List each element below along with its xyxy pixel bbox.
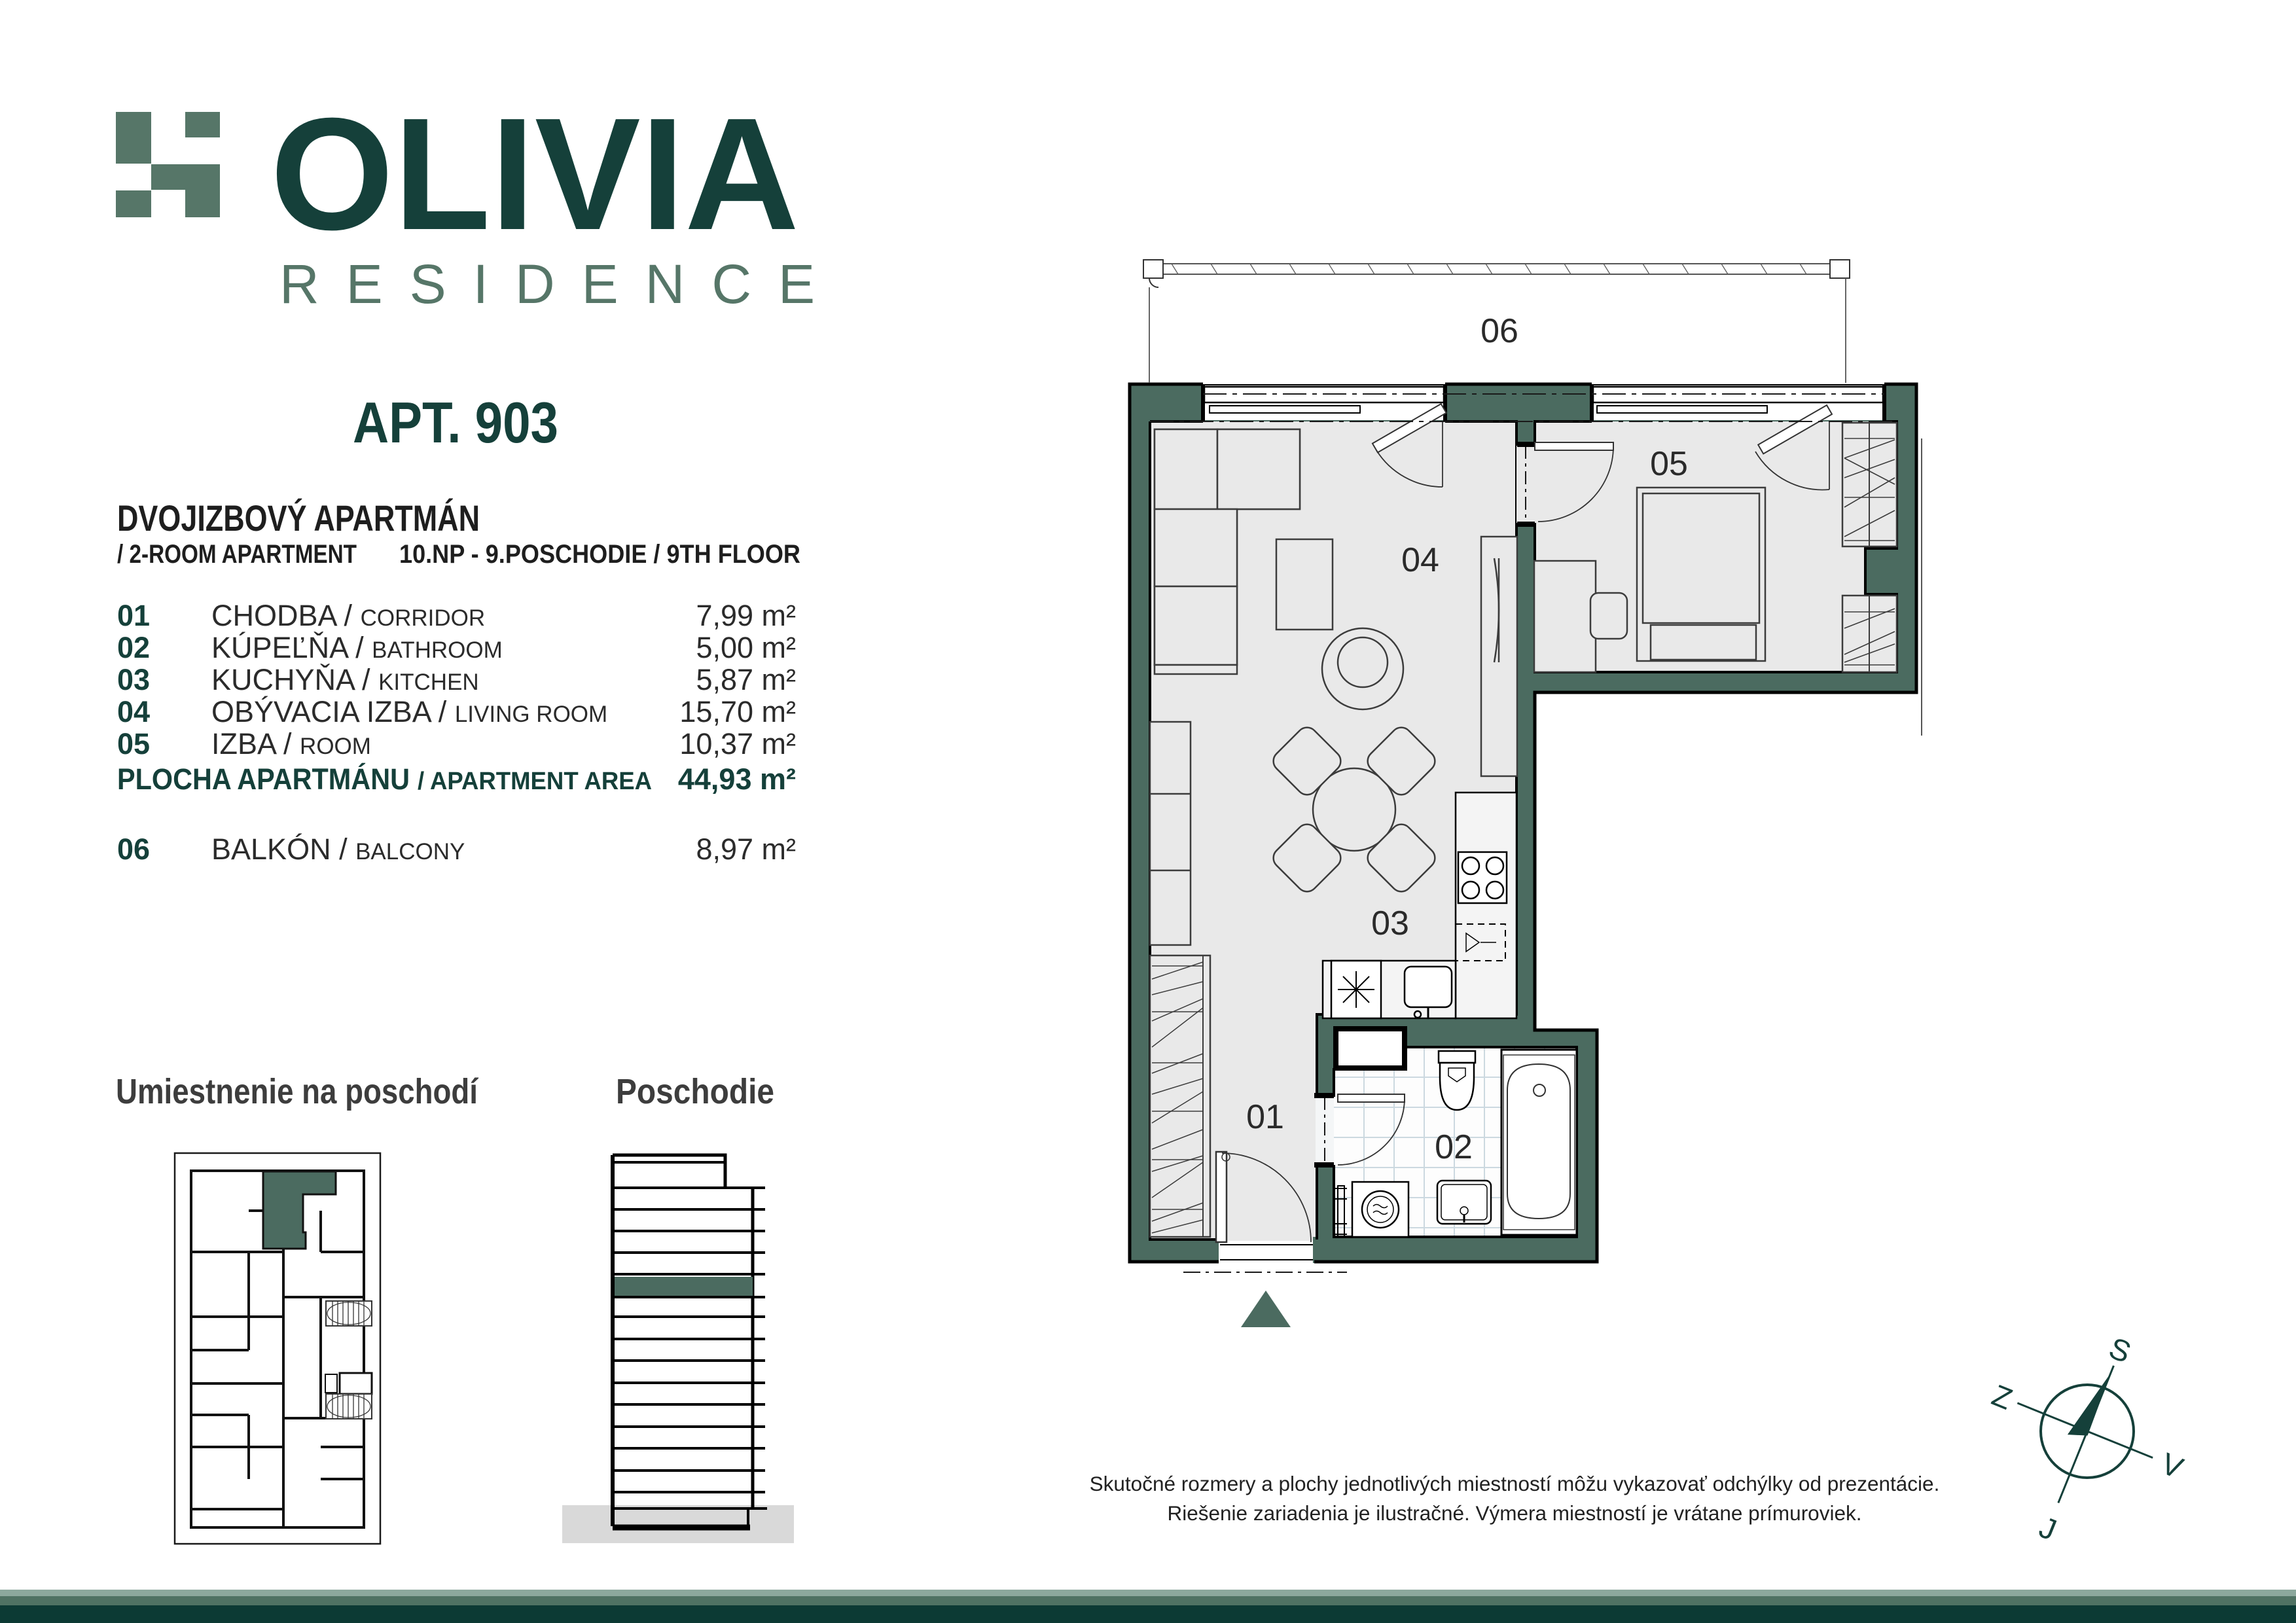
svg-text:44,93 m²: 44,93 m² [678,762,796,796]
svg-text:8,97 m²: 8,97 m² [696,832,796,866]
svg-text:RESIDENCE: RESIDENCE [279,253,815,315]
svg-text:5,87 m²: 5,87 m² [696,663,796,696]
svg-text:Poschodie: Poschodie [616,1072,774,1111]
svg-text:04: 04 [117,695,150,728]
svg-text:OLIVIA: OLIVIA [270,84,799,263]
svg-text:06: 06 [117,832,150,866]
svg-text:10,37 m²: 10,37 m² [679,727,796,760]
svg-text:01: 01 [117,599,150,632]
svg-text:02: 02 [1435,1128,1473,1166]
svg-text:PLOCHA APARTMÁNU: PLOCHA APARTMÁNU [117,762,410,796]
svg-text:05: 05 [117,727,150,760]
svg-text:10.NP - 9.POSCHODIE / 9TH FLOO: 10.NP - 9.POSCHODIE / 9TH FLOOR [399,540,800,569]
svg-text:02: 02 [117,631,150,664]
svg-text:03: 03 [1371,904,1409,942]
svg-text:APT. 903: APT. 903 [353,390,558,455]
svg-text:Umiestnenie na poschodí: Umiestnenie na poschodí [116,1072,479,1111]
svg-text:5,00 m²: 5,00 m² [696,631,796,664]
svg-text:05: 05 [1650,445,1688,483]
svg-text:DVOJIZBOVÝ APARTMÁN: DVOJIZBOVÝ APARTMÁN [117,497,480,539]
svg-text:06: 06 [1480,312,1518,350]
svg-text:03: 03 [117,663,150,696]
svg-text:Riešenie zariadenia je ilustra: Riešenie zariadenia je ilustračné. Výmer… [1168,1501,1862,1525]
svg-text:01: 01 [1246,1098,1284,1136]
svg-text:04: 04 [1401,541,1439,579]
svg-text:/ APARTMENT AREA: / APARTMENT AREA [418,768,652,795]
svg-text:/ 2-ROOM APARTMENT: / 2-ROOM APARTMENT [117,540,357,569]
svg-text:15,70 m²: 15,70 m² [679,695,796,728]
svg-text:Skutočné rozmery a plochy jedn: Skutočné rozmery a plochy jednotlivých m… [1090,1472,1940,1495]
svg-text:7,99 m²: 7,99 m² [696,599,796,632]
